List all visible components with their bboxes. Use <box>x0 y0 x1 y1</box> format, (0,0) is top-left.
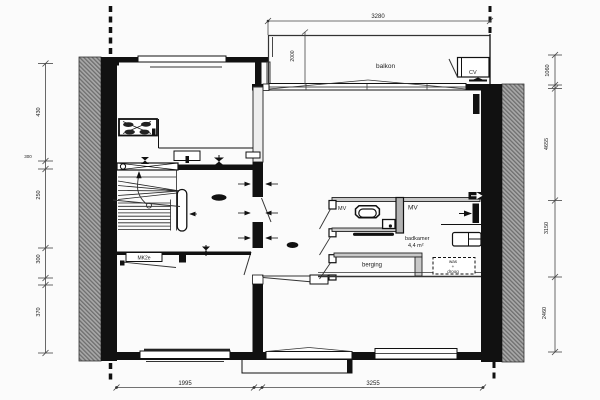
svg-text:300: 300 <box>36 254 42 263</box>
svg-text:2000: 2000 <box>290 50 296 61</box>
svg-text:MK2e: MK2e <box>137 256 150 262</box>
svg-text:MV: MV <box>408 205 418 212</box>
svg-text:CV: CV <box>469 70 477 76</box>
svg-text:MV: MV <box>338 206 347 212</box>
svg-text:1995: 1995 <box>178 381 192 387</box>
svg-text:4655: 4655 <box>544 138 550 150</box>
svg-text:1060: 1060 <box>545 64 551 76</box>
svg-text:4,4 m²: 4,4 m² <box>408 243 424 249</box>
svg-text:300: 300 <box>24 154 32 159</box>
svg-text:droog: droog <box>447 269 459 274</box>
svg-text:430: 430 <box>36 107 42 116</box>
svg-text:3255: 3255 <box>366 381 380 387</box>
svg-text:250: 250 <box>36 190 42 199</box>
svg-text:2460: 2460 <box>542 307 548 319</box>
svg-text:3150: 3150 <box>544 222 550 234</box>
svg-text:balkon: balkon <box>376 63 396 70</box>
svg-text:berging: berging <box>362 263 382 269</box>
svg-text:badkamer: badkamer <box>405 236 430 242</box>
svg-text:370: 370 <box>36 307 42 316</box>
svg-text:3280: 3280 <box>371 14 385 20</box>
